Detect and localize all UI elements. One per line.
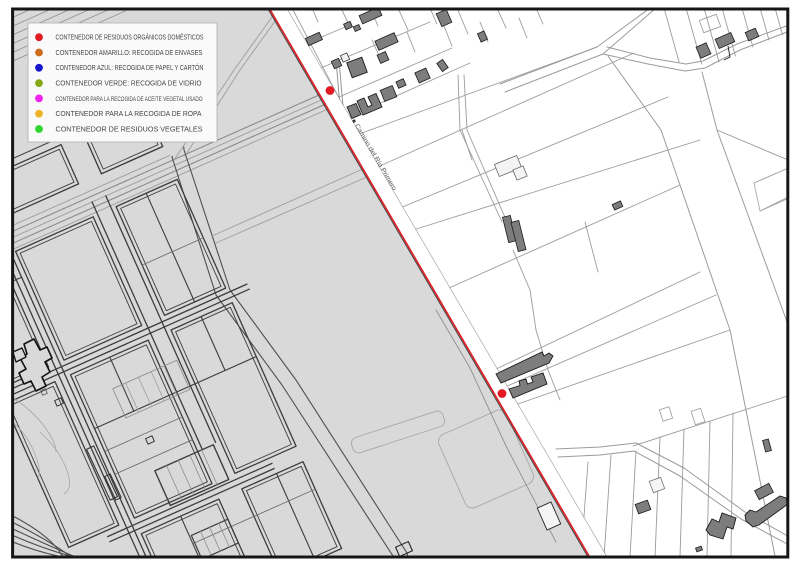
svg-text:CONTENEDOR AMARILLO: RECOGIDA: CONTENEDOR AMARILLO: RECOGIDA DE ENVASES [56,48,203,57]
svg-text:CONTENEDOR VERDE: RECOGIDA DE: CONTENEDOR VERDE: RECOGIDA DE VIDRIO [56,79,202,88]
svg-text:CONTENEDOR DE RESIDUOS ORGÁNIC: CONTENEDOR DE RESIDUOS ORGÁNICOS DOMÉSTI… [56,33,204,42]
svg-text:CONTENEDOR PARA LA RECOGIDA DE: CONTENEDOR PARA LA RECOGIDA DE ACEITE VE… [56,96,203,103]
svg-text:CONTENEDOR DE RESIDUOS VEGETAL: CONTENEDOR DE RESIDUOS VEGETALES [56,124,203,133]
svg-text:CONTENEDOR AZUL: RECOGIDA DE P: CONTENEDOR AZUL: RECOGIDA DE PAPEL Y CAR… [56,63,204,72]
svg-text:CONTENEDOR PARA LA RECOGIDA DE: CONTENEDOR PARA LA RECOGIDA DE ROPA [56,109,202,118]
